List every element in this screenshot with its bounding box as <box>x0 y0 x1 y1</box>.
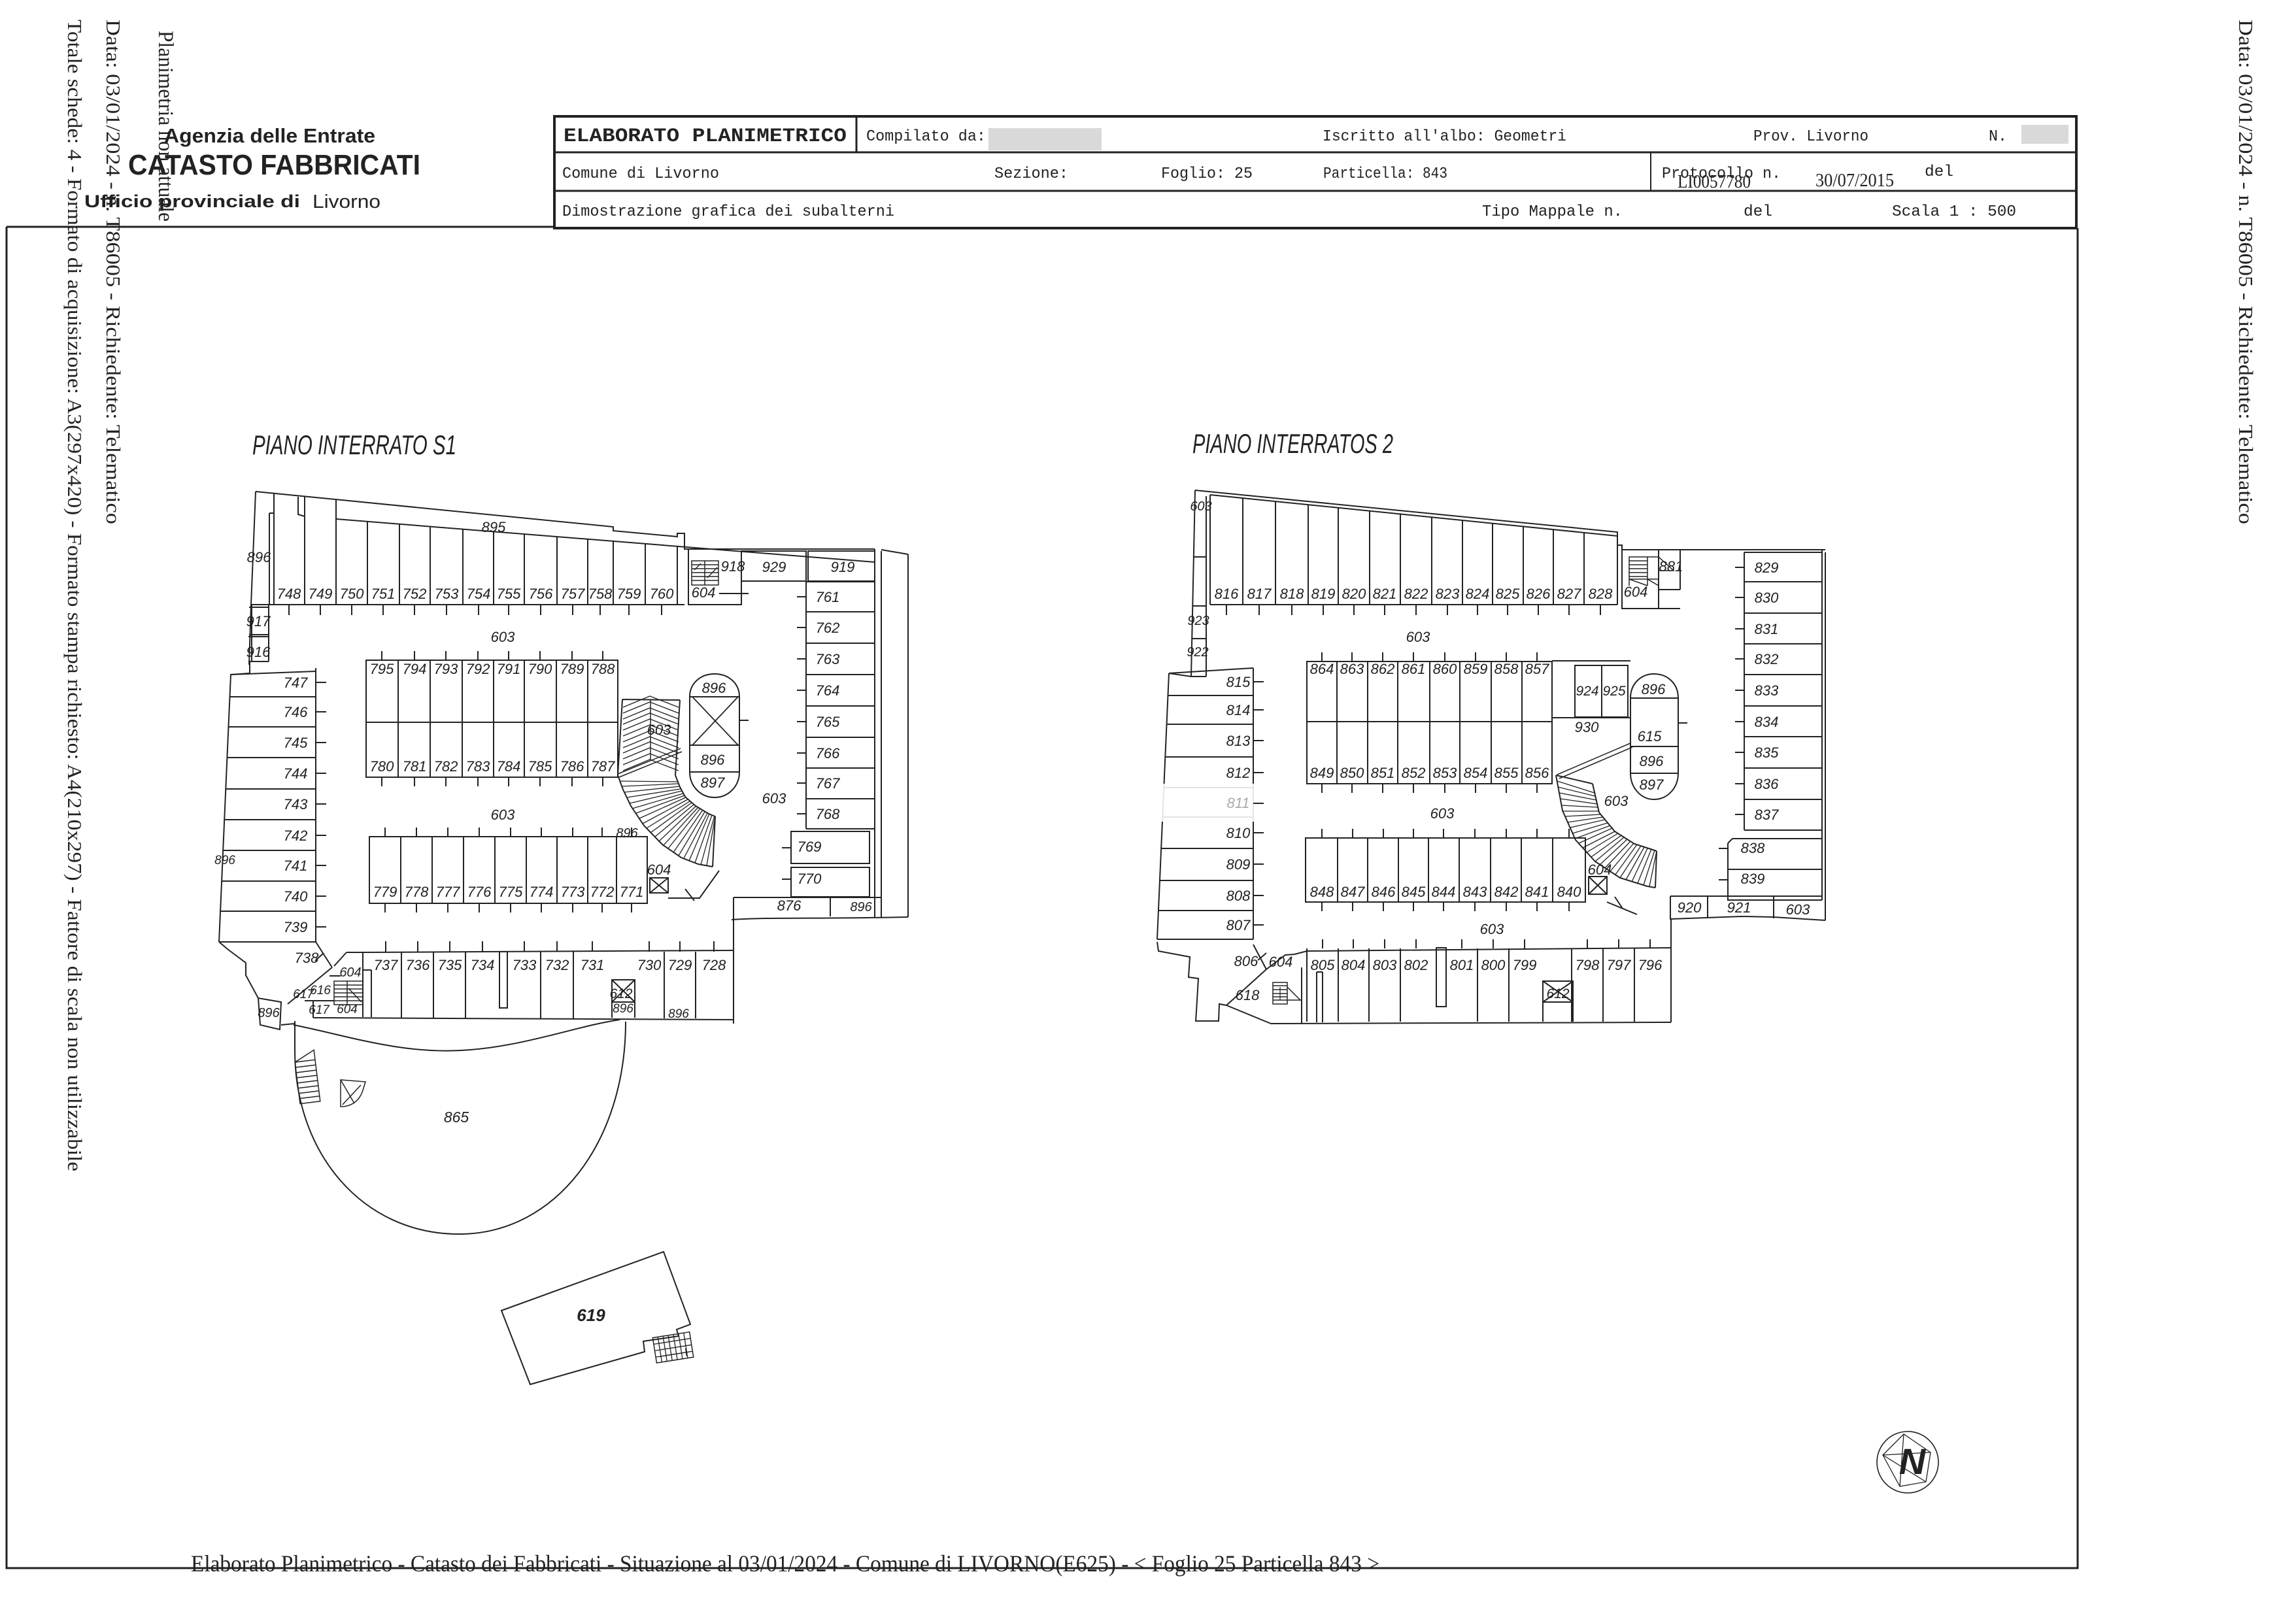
svg-text:838: 838 <box>1741 840 1765 856</box>
svg-text:824: 824 <box>1466 586 1490 602</box>
svg-text:896: 896 <box>258 1006 280 1020</box>
svg-text:604: 604 <box>339 965 361 980</box>
svg-text:862: 862 <box>1371 661 1395 677</box>
svg-text:852: 852 <box>1402 765 1426 781</box>
svg-text:832: 832 <box>1755 651 1779 667</box>
svg-text:Iscritto all'albo: Geometri: Iscritto all'albo: Geometri <box>1323 128 1566 146</box>
svg-text:807: 807 <box>1226 917 1251 933</box>
svg-text:919: 919 <box>831 559 855 575</box>
svg-text:777: 777 <box>436 884 460 900</box>
svg-text:739: 739 <box>284 919 308 935</box>
svg-text:765: 765 <box>816 714 840 730</box>
svg-text:896: 896 <box>613 1002 633 1016</box>
svg-text:30/07/2015: 30/07/2015 <box>1815 171 1894 191</box>
svg-text:791: 791 <box>497 661 521 677</box>
svg-text:603: 603 <box>1406 629 1430 645</box>
svg-text:734: 734 <box>471 957 495 973</box>
svg-text:749: 749 <box>309 586 333 602</box>
svg-text:828: 828 <box>1589 586 1613 602</box>
svg-text:741: 741 <box>284 858 308 874</box>
svg-text:762: 762 <box>816 620 840 636</box>
svg-text:737: 737 <box>374 957 398 973</box>
svg-text:PIANO INTERRATO S1: PIANO INTERRATO S1 <box>252 429 456 460</box>
svg-text:847: 847 <box>1341 884 1365 900</box>
svg-text:Data: 03/01/2024 - n. T86005 -: Data: 03/01/2024 - n. T86005 - Richieden… <box>2235 20 2257 524</box>
svg-text:Tipo Mappale n.: Tipo Mappale n. <box>1482 203 1623 221</box>
svg-text:792: 792 <box>466 661 490 677</box>
svg-text:757: 757 <box>561 586 585 602</box>
svg-text:787: 787 <box>591 758 615 775</box>
svg-text:del: del <box>1744 203 1772 221</box>
svg-text:842: 842 <box>1494 884 1519 900</box>
svg-text:615: 615 <box>1638 728 1662 745</box>
svg-text:849: 849 <box>1310 765 1334 781</box>
svg-text:604: 604 <box>692 584 716 601</box>
svg-text:729: 729 <box>668 957 692 973</box>
svg-text:746: 746 <box>284 704 308 720</box>
svg-text:897: 897 <box>1640 777 1664 793</box>
svg-text:738: 738 <box>295 950 319 966</box>
svg-text:896: 896 <box>1642 681 1666 697</box>
svg-text:740: 740 <box>284 888 308 905</box>
svg-text:PIANO INTERRATOS 2: PIANO INTERRATOS 2 <box>1192 428 1393 459</box>
svg-text:770: 770 <box>798 871 822 887</box>
svg-text:778: 778 <box>405 884 429 900</box>
svg-text:924: 924 <box>1576 684 1598 699</box>
svg-text:del: del <box>1925 163 1953 181</box>
svg-text:748: 748 <box>277 586 301 602</box>
svg-text:801: 801 <box>1450 957 1474 973</box>
svg-text:836: 836 <box>1755 776 1779 792</box>
svg-text:771: 771 <box>620 884 644 900</box>
svg-text:834: 834 <box>1755 714 1779 730</box>
svg-text:812: 812 <box>1226 765 1251 781</box>
svg-text:923: 923 <box>1187 614 1209 628</box>
svg-text:840: 840 <box>1557 884 1581 900</box>
svg-text:897: 897 <box>701 775 725 791</box>
svg-text:786: 786 <box>560 758 584 775</box>
svg-text:822: 822 <box>1404 586 1428 602</box>
svg-text:781: 781 <box>403 758 427 775</box>
svg-text:784: 784 <box>497 758 521 775</box>
svg-text:N.: N. <box>1989 128 2007 146</box>
svg-text:776: 776 <box>467 884 492 900</box>
svg-text:823: 823 <box>1436 586 1460 602</box>
svg-text:806: 806 <box>1234 953 1258 969</box>
svg-text:896: 896 <box>850 900 872 914</box>
svg-text:858: 858 <box>1494 661 1519 677</box>
svg-text:848: 848 <box>1310 884 1334 900</box>
svg-text:N: N <box>1899 1441 1927 1482</box>
svg-text:782: 782 <box>434 758 458 775</box>
svg-text:603: 603 <box>1430 805 1455 822</box>
svg-text:769: 769 <box>798 839 822 855</box>
svg-text:783: 783 <box>466 758 490 775</box>
svg-text:789: 789 <box>560 661 584 677</box>
svg-text:837: 837 <box>1755 807 1779 823</box>
svg-text:829: 829 <box>1755 560 1779 576</box>
svg-text:800: 800 <box>1481 957 1506 973</box>
svg-text:827: 827 <box>1557 586 1581 602</box>
svg-text:896: 896 <box>1640 753 1664 769</box>
svg-text:896: 896 <box>247 549 271 565</box>
svg-text:780: 780 <box>370 758 394 775</box>
svg-text:930: 930 <box>1575 719 1599 735</box>
svg-text:814: 814 <box>1226 702 1251 718</box>
svg-text:Agenzia delle Entrate: Agenzia delle Entrate <box>164 124 375 147</box>
svg-text:Dimostrazione grafica dei suba: Dimostrazione grafica dei subalterni <box>562 203 894 221</box>
svg-text:763: 763 <box>816 651 840 667</box>
svg-text:755: 755 <box>497 586 521 602</box>
svg-text:604: 604 <box>337 1003 358 1016</box>
svg-text:821: 821 <box>1373 586 1397 602</box>
svg-text:925: 925 <box>1602 684 1625 699</box>
svg-text:603: 603 <box>1190 499 1211 514</box>
svg-text:758: 758 <box>588 586 613 602</box>
svg-text:603: 603 <box>647 722 671 738</box>
svg-text:732: 732 <box>545 957 569 973</box>
svg-text:Compilato da:: Compilato da: <box>866 128 986 146</box>
svg-text:835: 835 <box>1755 745 1779 761</box>
svg-text:896: 896 <box>214 854 235 867</box>
svg-text:896: 896 <box>668 1007 689 1021</box>
svg-text:799: 799 <box>1513 957 1537 973</box>
svg-text:846: 846 <box>1372 884 1396 900</box>
svg-text:612: 612 <box>1546 986 1569 1001</box>
svg-text:731: 731 <box>581 957 605 973</box>
svg-text:Sezione:: Sezione: <box>994 165 1068 183</box>
svg-text:865: 865 <box>444 1109 469 1126</box>
svg-text:Totale schede: 4 - Formato di: Totale schede: 4 - Formato di acquisizio… <box>63 20 86 1171</box>
svg-text:920: 920 <box>1678 899 1702 916</box>
svg-text:742: 742 <box>284 828 308 844</box>
svg-text:843: 843 <box>1463 884 1487 900</box>
svg-text:896: 896 <box>702 680 726 696</box>
svg-text:811: 811 <box>1226 795 1249 811</box>
svg-text:896: 896 <box>701 752 725 768</box>
svg-text:810: 810 <box>1226 825 1251 841</box>
svg-text:774: 774 <box>530 884 554 900</box>
svg-text:864: 864 <box>1310 661 1334 677</box>
svg-text:744: 744 <box>284 765 308 782</box>
svg-text:896: 896 <box>616 826 638 841</box>
svg-text:Foglio: 25: Foglio: 25 <box>1161 165 1253 183</box>
svg-text:779: 779 <box>373 884 397 900</box>
svg-text:Elaborato Planimetrico - Catas: Elaborato Planimetrico - Catasto dei Fab… <box>191 1550 1379 1577</box>
svg-text:809: 809 <box>1226 856 1251 873</box>
svg-text:775: 775 <box>499 884 523 900</box>
svg-text:773: 773 <box>561 884 585 900</box>
svg-text:851: 851 <box>1371 765 1395 781</box>
svg-text:845: 845 <box>1402 884 1426 900</box>
svg-text:855: 855 <box>1494 765 1519 781</box>
svg-text:735: 735 <box>438 957 462 973</box>
svg-text:ELABORATO PLANIMETRICO: ELABORATO PLANIMETRICO <box>564 125 847 148</box>
svg-text:881: 881 <box>1659 558 1683 575</box>
svg-text:604: 604 <box>647 862 671 878</box>
svg-text:751: 751 <box>371 586 396 602</box>
svg-text:793: 793 <box>434 661 458 677</box>
svg-text:Data: 03/01/2024 - n. T86005 -: Data: 03/01/2024 - n. T86005 - Richieden… <box>102 20 125 524</box>
svg-text:619: 619 <box>577 1305 605 1325</box>
svg-text:803: 803 <box>1373 957 1397 973</box>
svg-text:830: 830 <box>1755 590 1779 606</box>
svg-text:922: 922 <box>1187 645 1208 660</box>
svg-text:917: 917 <box>246 613 271 629</box>
svg-text:604: 604 <box>1624 584 1648 600</box>
svg-text:816: 816 <box>1215 586 1239 602</box>
svg-text:921: 921 <box>1727 899 1751 916</box>
svg-text:Particella: 843: Particella: 843 <box>1323 165 1447 183</box>
svg-text:603: 603 <box>491 807 515 823</box>
svg-text:Prov. Livorno: Prov. Livorno <box>1753 128 1868 146</box>
svg-text:616: 616 <box>310 984 331 997</box>
svg-text:844: 844 <box>1432 884 1456 900</box>
svg-text:825: 825 <box>1496 586 1520 602</box>
svg-text:854: 854 <box>1464 765 1488 781</box>
svg-text:826: 826 <box>1527 586 1551 602</box>
svg-text:860: 860 <box>1433 661 1457 677</box>
svg-text:817: 817 <box>1247 586 1272 602</box>
svg-text:853: 853 <box>1433 765 1457 781</box>
svg-text:745: 745 <box>284 735 308 751</box>
svg-text:603: 603 <box>1480 921 1504 937</box>
svg-text:794: 794 <box>403 661 427 677</box>
svg-text:612: 612 <box>609 986 632 1001</box>
svg-text:617: 617 <box>309 1003 330 1017</box>
svg-text:730: 730 <box>637 957 662 973</box>
svg-text:603: 603 <box>491 629 515 645</box>
svg-text:876: 876 <box>777 897 802 914</box>
svg-text:841: 841 <box>1525 884 1549 900</box>
svg-text:820: 820 <box>1342 586 1366 602</box>
svg-text:759: 759 <box>617 586 641 602</box>
svg-text:618: 618 <box>1236 987 1260 1003</box>
svg-text:861: 861 <box>1402 661 1426 677</box>
svg-text:831: 831 <box>1755 621 1779 637</box>
svg-text:Scala 1 : 500: Scala 1 : 500 <box>1892 203 2016 221</box>
svg-text:813: 813 <box>1226 733 1251 749</box>
svg-text:LI0057780: LI0057780 <box>1678 172 1751 192</box>
svg-text:863: 863 <box>1340 661 1364 677</box>
svg-text:768: 768 <box>816 806 840 822</box>
svg-text:736: 736 <box>406 957 430 973</box>
svg-text:815: 815 <box>1226 674 1251 690</box>
svg-text:772: 772 <box>590 884 615 900</box>
svg-text:796: 796 <box>1638 957 1663 973</box>
svg-text:Planimetria non attuale: Planimetria non attuale <box>154 31 177 222</box>
svg-text:767: 767 <box>816 775 840 792</box>
svg-text:802: 802 <box>1404 957 1428 973</box>
svg-text:603: 603 <box>1786 901 1810 918</box>
svg-text:756: 756 <box>529 586 553 602</box>
svg-text:785: 785 <box>528 758 552 775</box>
svg-text:Comune di Livorno: Comune di Livorno <box>562 165 719 183</box>
svg-text:790: 790 <box>528 661 552 677</box>
svg-text:856: 856 <box>1525 765 1549 781</box>
svg-text:603: 603 <box>1604 793 1629 809</box>
svg-text:750: 750 <box>340 586 364 602</box>
svg-text:743: 743 <box>284 796 308 812</box>
svg-text:819: 819 <box>1311 586 1336 602</box>
svg-text:728: 728 <box>702 957 726 973</box>
svg-text:850: 850 <box>1340 765 1364 781</box>
svg-text:604: 604 <box>1269 954 1293 970</box>
svg-text:753: 753 <box>435 586 459 602</box>
svg-text:818: 818 <box>1280 586 1304 602</box>
svg-text:795: 795 <box>370 661 394 677</box>
svg-text:916: 916 <box>246 644 271 660</box>
svg-text:754: 754 <box>467 586 491 602</box>
svg-text:603: 603 <box>762 790 786 807</box>
svg-text:808: 808 <box>1226 888 1251 904</box>
svg-text:766: 766 <box>816 745 840 761</box>
svg-text:857: 857 <box>1525 661 1549 677</box>
svg-text:760: 760 <box>650 586 674 602</box>
svg-text:804: 804 <box>1342 957 1366 973</box>
svg-text:752: 752 <box>403 586 427 602</box>
svg-text:Livorno: Livorno <box>312 192 380 212</box>
svg-text:747: 747 <box>284 675 308 691</box>
svg-text:764: 764 <box>816 682 840 699</box>
svg-text:929: 929 <box>762 559 786 575</box>
svg-text:797: 797 <box>1607 957 1631 973</box>
svg-text:859: 859 <box>1464 661 1488 677</box>
svg-text:805: 805 <box>1311 957 1335 973</box>
svg-text:833: 833 <box>1755 682 1779 699</box>
svg-text:733: 733 <box>513 957 537 973</box>
svg-text:839: 839 <box>1741 871 1765 887</box>
svg-text:761: 761 <box>816 589 840 605</box>
svg-text:788: 788 <box>591 661 615 677</box>
svg-text:798: 798 <box>1576 957 1600 973</box>
